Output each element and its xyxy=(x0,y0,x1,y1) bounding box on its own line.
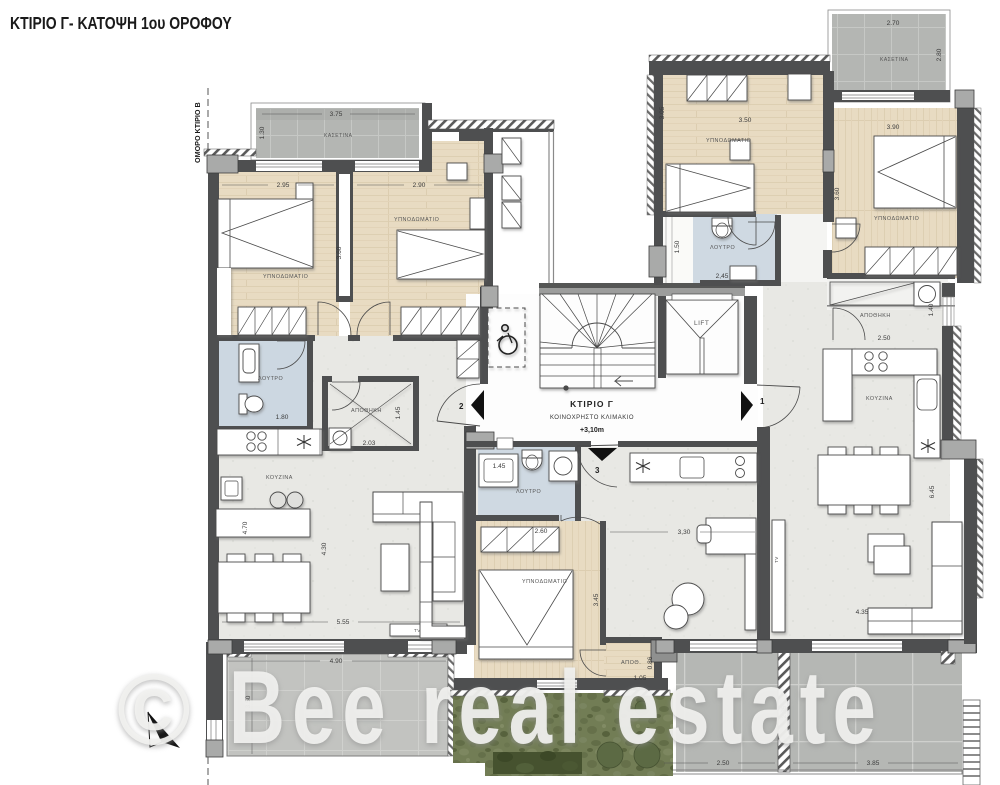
svg-text:3.60: 3.60 xyxy=(834,187,841,200)
svg-text:3.90: 3.90 xyxy=(887,124,900,131)
svg-text:3,30: 3,30 xyxy=(678,529,691,536)
svg-text:TV: TV xyxy=(774,556,779,563)
svg-text:4.35: 4.35 xyxy=(856,609,869,616)
svg-text:ΑΠΟΘΗΚΗ: ΑΠΟΘΗΚΗ xyxy=(860,313,891,319)
svg-text:+3,10m: +3,10m xyxy=(580,427,604,434)
svg-text:1.50: 1.50 xyxy=(674,240,681,253)
svg-text:1.45: 1.45 xyxy=(493,463,506,470)
svg-text:ΥΠΝΟΔΩΜΑΤΙΟ: ΥΠΝΟΔΩΜΑΤΙΟ xyxy=(522,579,567,585)
svg-text:2.80: 2.80 xyxy=(936,48,943,61)
svg-text:4.70: 4.70 xyxy=(242,521,249,534)
svg-text:3: 3 xyxy=(595,466,600,475)
svg-text:6.45: 6.45 xyxy=(929,485,936,498)
svg-text:ΟΜΟΡΟ ΚΤΙΡΙΟ Β: ΟΜΟΡΟ ΚΤΙΡΙΟ Β xyxy=(193,102,202,163)
svg-text:5.55: 5.55 xyxy=(337,619,350,626)
svg-text:2.90: 2.90 xyxy=(413,182,426,189)
svg-text:ΚΤΙΡΙΟ Γ: ΚΤΙΡΙΟ Γ xyxy=(570,399,614,409)
svg-text:3.75: 3.75 xyxy=(330,111,343,118)
svg-text:1: 1 xyxy=(760,397,765,406)
svg-text:2: 2 xyxy=(459,402,464,411)
svg-text:2.50: 2.50 xyxy=(878,335,891,342)
svg-text:ΚΟΥΖΙΝΑ: ΚΟΥΖΙΝΑ xyxy=(866,396,893,402)
svg-text:ΥΠΝΟΔΩΜΑΤΙΟ: ΥΠΝΟΔΩΜΑΤΙΟ xyxy=(874,216,919,222)
svg-text:ΛΟΥΤΡΟ: ΛΟΥΤΡΟ xyxy=(710,245,735,251)
svg-text:ΚΟΥΖΙΝΑ: ΚΟΥΖΙΝΑ xyxy=(266,475,293,481)
svg-text:1.45: 1.45 xyxy=(395,406,402,419)
svg-text:2.03: 2.03 xyxy=(363,440,376,447)
svg-text:2.95: 2.95 xyxy=(277,182,290,189)
svg-text:ΚΤΙΡΙΟ Γ- ΚΑΤΟΨΗ 1ου ΟΡΟΦΟΥ: ΚΤΙΡΙΟ Γ- ΚΑΤΟΨΗ 1ου ΟΡΟΦΟΥ xyxy=(10,15,232,34)
svg-text:Bee real estate: Bee real estate xyxy=(229,650,883,765)
svg-text:LIFT: LIFT xyxy=(694,320,709,327)
svg-text:3.45: 3.45 xyxy=(593,593,600,606)
svg-text:ΥΠΝΟΔΩΜΑΤΙΟ: ΥΠΝΟΔΩΜΑΤΙΟ xyxy=(394,217,439,223)
svg-text:3.60: 3.60 xyxy=(336,246,343,259)
svg-text:4.30: 4.30 xyxy=(321,542,328,555)
svg-text:ΥΠΝΟΔΩΜΑΤΙΟ: ΥΠΝΟΔΩΜΑΤΙΟ xyxy=(263,274,308,280)
svg-text:ΚΟΙΝΟΧΡΗΣΤΟ ΚΛΙΜΑΚΙΟ: ΚΟΙΝΟΧΡΗΣΤΟ ΚΛΙΜΑΚΙΟ xyxy=(550,415,634,421)
svg-text:2.70: 2.70 xyxy=(887,20,900,27)
svg-text:ΛΟΥΤΡΟ: ΛΟΥΤΡΟ xyxy=(258,376,283,382)
svg-text:1.40: 1.40 xyxy=(928,303,935,316)
svg-text:ΚΑΣΕΤΙΝΑ: ΚΑΣΕΤΙΝΑ xyxy=(880,57,909,63)
svg-text:ΚΑΣΕΤΙΝΑ: ΚΑΣΕΤΙΝΑ xyxy=(324,133,353,139)
svg-text:2,45: 2,45 xyxy=(716,273,729,280)
svg-text:3.50: 3.50 xyxy=(739,117,752,124)
svg-text:3.05: 3.05 xyxy=(659,106,666,119)
svg-text:1.80: 1.80 xyxy=(276,414,289,421)
svg-text:ΑΠΟΘΗΚΗ: ΑΠΟΘΗΚΗ xyxy=(351,408,382,414)
svg-text:ΥΠΝΟΔΩΜΑΤΙΟ: ΥΠΝΟΔΩΜΑΤΙΟ xyxy=(706,138,751,144)
svg-text:1.30: 1.30 xyxy=(259,126,266,139)
svg-text:©: © xyxy=(117,654,191,766)
svg-text:2.60: 2.60 xyxy=(535,528,548,535)
svg-text:TV: TV xyxy=(414,628,421,633)
svg-text:ΛΟΥΤΡΟ: ΛΟΥΤΡΟ xyxy=(516,489,541,495)
